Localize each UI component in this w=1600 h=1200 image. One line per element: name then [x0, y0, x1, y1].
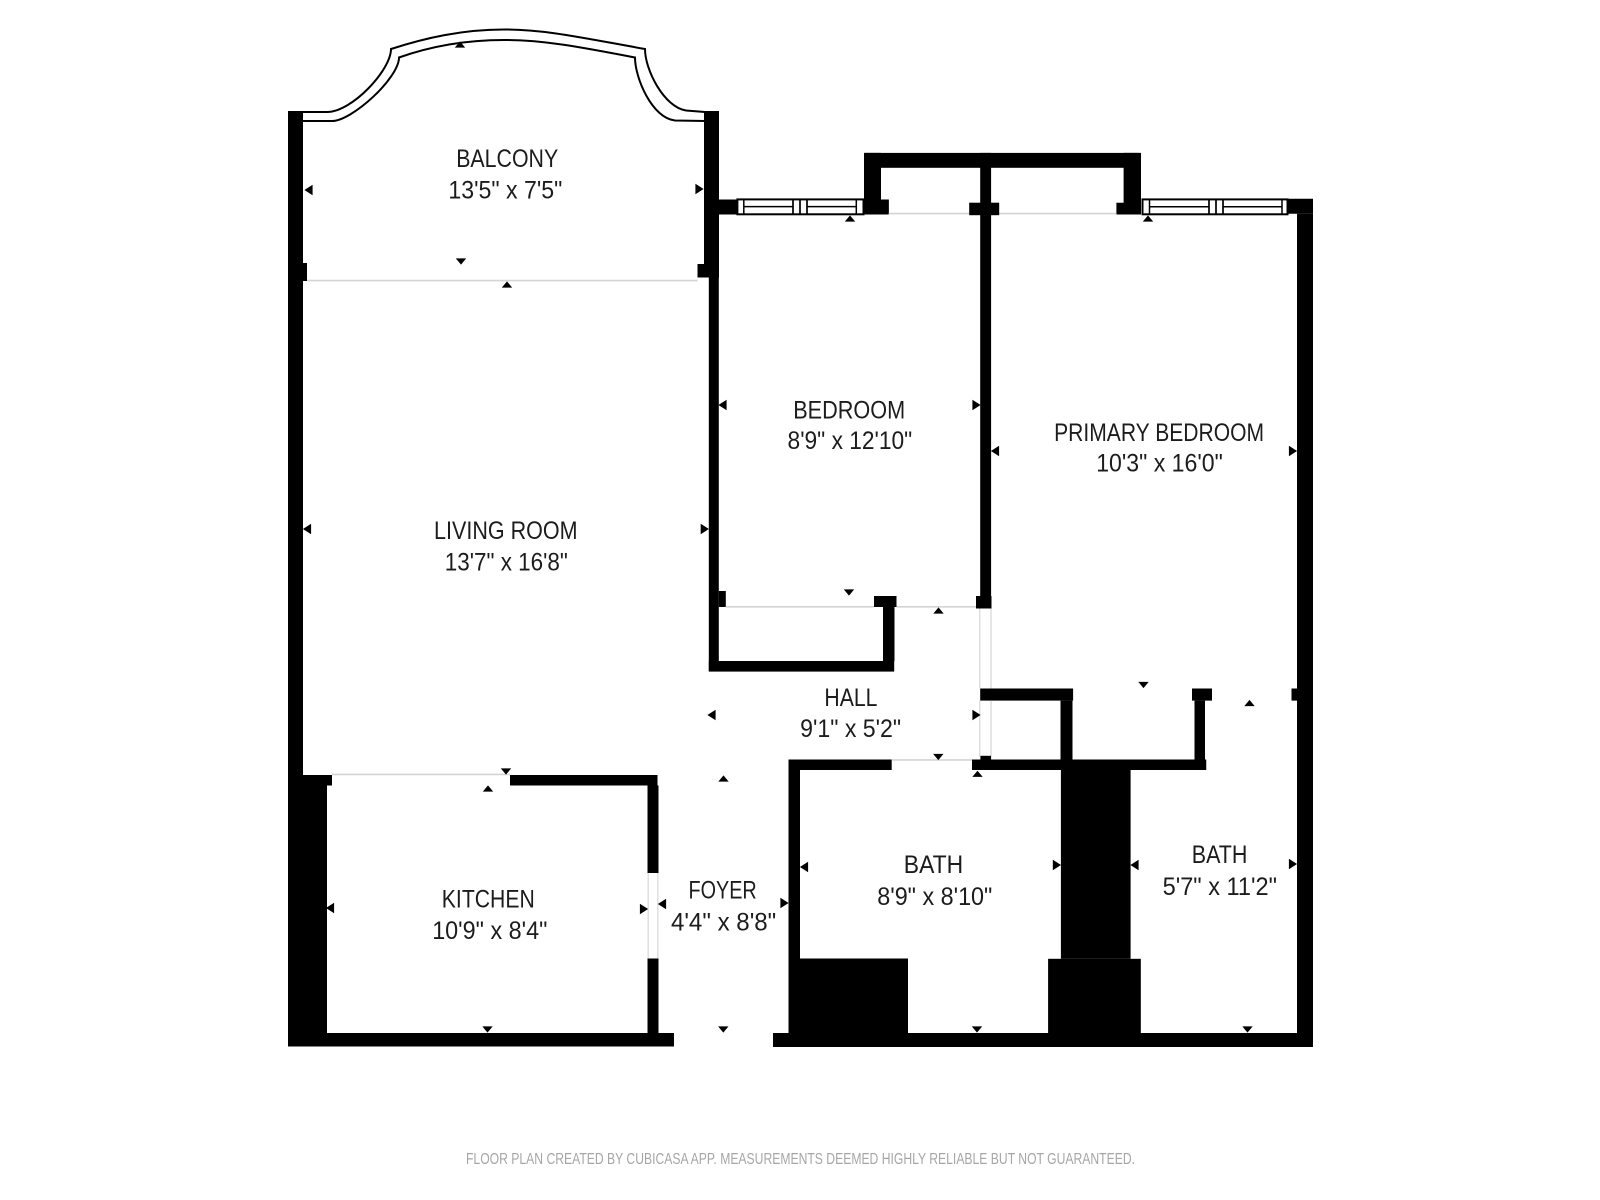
svg-text:5'7" x 11'2": 5'7" x 11'2"	[1163, 874, 1277, 901]
svg-text:13'7" x 16'8": 13'7" x 16'8"	[445, 549, 568, 576]
svg-text:10'3" x 16'0": 10'3" x 16'0"	[1096, 451, 1223, 478]
svg-text:LIVING ROOM: LIVING ROOM	[434, 518, 578, 545]
svg-text:4'4" x 8'8": 4'4" x 8'8"	[671, 909, 776, 936]
svg-text:BALCONY: BALCONY	[456, 146, 558, 173]
svg-text:FLOOR PLAN CREATED BY CUBICASA: FLOOR PLAN CREATED BY CUBICASA APP. MEAS…	[466, 1151, 1135, 1168]
svg-text:8'9" x 8'10": 8'9" x 8'10"	[877, 884, 992, 911]
svg-text:FOYER: FOYER	[689, 878, 757, 905]
svg-text:PRIMARY BEDROOM: PRIMARY BEDROOM	[1054, 420, 1264, 447]
svg-text:BATH: BATH	[1192, 842, 1248, 869]
svg-text:BEDROOM: BEDROOM	[793, 397, 905, 424]
svg-text:HALL: HALL	[824, 685, 877, 712]
svg-text:8'9" x 12'10": 8'9" x 12'10"	[788, 428, 913, 455]
svg-text:13'5" x 7'5": 13'5" x 7'5"	[448, 177, 562, 204]
svg-text:BATH: BATH	[904, 852, 963, 879]
svg-text:9'1" x 5'2": 9'1" x 5'2"	[800, 716, 901, 743]
svg-text:10'9" x 8'4": 10'9" x 8'4"	[432, 918, 547, 945]
svg-text:KITCHEN: KITCHEN	[442, 886, 535, 913]
